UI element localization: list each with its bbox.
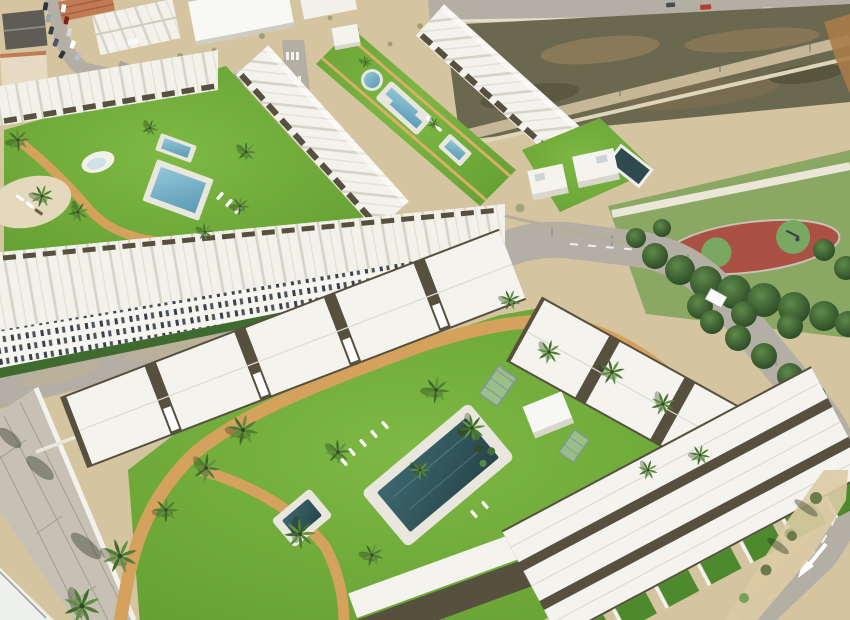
utility-cube [331,24,360,50]
tree [731,301,757,327]
tree [653,219,671,237]
tree [700,310,724,334]
parked-car [666,2,675,7]
splash-pool-round [361,69,383,91]
tree [777,313,803,339]
tree [642,243,668,269]
aerial-render-image [0,0,850,620]
tree [787,531,797,541]
tree [809,301,839,331]
town-house-dark-roof [2,10,48,50]
tree [810,492,822,504]
tree [813,239,835,261]
tree [626,228,646,248]
tree [761,565,772,576]
tree [751,343,777,369]
street-tree [516,204,525,213]
scene-canvas [0,0,850,620]
red-car [700,4,711,10]
tree [739,593,749,603]
tree [725,325,751,351]
